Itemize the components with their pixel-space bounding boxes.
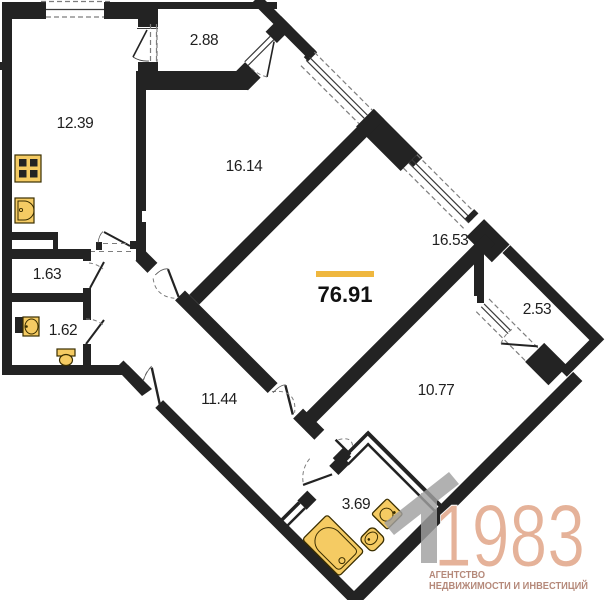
svg-text:12.39: 12.39 [57, 115, 94, 132]
svg-text:2.53: 2.53 [523, 301, 552, 318]
svg-text:3.69: 3.69 [342, 496, 371, 513]
svg-text:76.91: 76.91 [317, 282, 372, 307]
svg-text:16.53: 16.53 [432, 232, 469, 249]
svg-text:11.44: 11.44 [201, 391, 237, 408]
svg-text:16.14: 16.14 [226, 158, 264, 175]
svg-text:1.62: 1.62 [49, 322, 78, 339]
svg-text:НЕДВИЖИМОСТИ И ИНВЕСТИЦИЙ: НЕДВИЖИМОСТИ И ИНВЕСТИЦИЙ [429, 579, 588, 592]
svg-text:10.77: 10.77 [418, 382, 455, 399]
svg-text:1.63: 1.63 [33, 266, 62, 283]
svg-text:2.88: 2.88 [190, 32, 219, 49]
